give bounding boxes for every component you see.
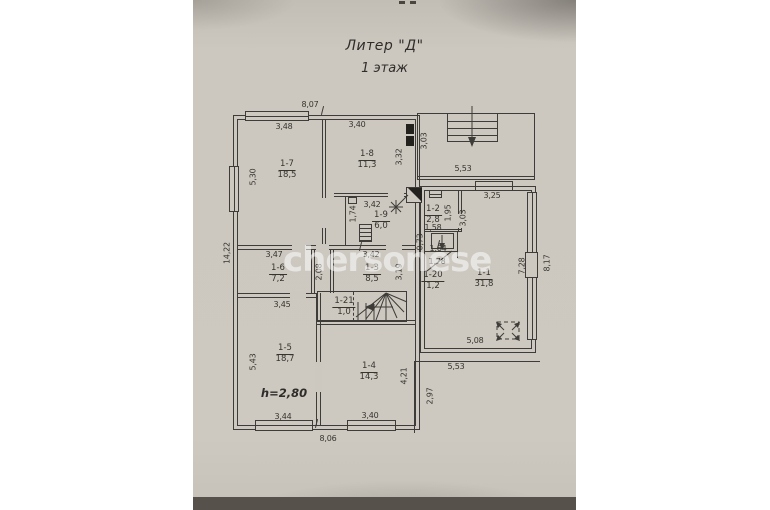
dimension-label: 3,42 (362, 250, 379, 259)
dimension-label-vertical: 3,03 (459, 209, 468, 226)
dimension-label: 3,25 (483, 191, 500, 200)
dimension-label-vertical: 3,19 (395, 263, 404, 280)
dimension-label-vertical: 3,32 (395, 148, 404, 165)
dimension-label: 3,45 (273, 300, 290, 309)
room-label-1-3: 1-38,5 (363, 264, 381, 285)
dimension-label: 3,42 (363, 200, 380, 209)
dimension-label-vertical: 4,21 (400, 367, 409, 384)
room-label-1-1: 1-131,8 (475, 269, 494, 290)
dimension-label-vertical: 8,17 (543, 254, 552, 271)
dimension-label: 5,53 (447, 362, 464, 371)
dimension-label-vertical: 1,95 (444, 204, 453, 221)
dimension-label-vertical: 5,30 (249, 168, 258, 185)
ceiling-height-note: h=2,80 (261, 386, 307, 400)
dimension-label: 1,78 (428, 257, 445, 266)
dimension-label-vertical: 7,28 (518, 257, 527, 274)
dimension-label: 3,40 (361, 411, 378, 420)
dimension-label: 1,64 (429, 244, 446, 253)
plan-labels: 1-718,51-811,31-96,01-22,81-67,21-38,51-… (0, 0, 770, 510)
scene: Литер "Д" 1 этаж (0, 0, 770, 510)
dimension-label: 1,58 (424, 223, 441, 232)
dimension-label-vertical: 2,97 (426, 387, 435, 404)
room-label-1-7: 1-718,5 (278, 160, 297, 181)
room-label-1-8: 1-811,3 (358, 150, 377, 171)
room-label-1-4: 1-414,3 (360, 362, 379, 383)
room-label-1-9: 1-96,0 (372, 211, 390, 232)
dimension-label: 8,06 (319, 434, 336, 443)
room-label-1-5: 1-518,7 (276, 344, 295, 365)
dimension-label: 3,40 (348, 120, 365, 129)
dimension-label: 3,48 (275, 122, 292, 131)
dimension-label: 5,53 (454, 164, 471, 173)
dimension-label-vertical: 5,43 (249, 353, 258, 370)
dimension-label-vertical: 0,73 (416, 233, 425, 250)
room-label-1-6: 1-67,2 (269, 264, 287, 285)
dimension-label-vertical: 14,22 (223, 242, 232, 264)
room-label-1-20: 1-201,2 (421, 271, 444, 292)
dimension-label: 3,44 (274, 412, 291, 421)
dimension-label-vertical: 2,08 (315, 263, 324, 280)
dimension-label: 8,07 (301, 100, 318, 109)
dimension-label: 3,47 (265, 250, 282, 259)
dimension-label-vertical: 1,74 (349, 205, 358, 222)
room-label-1-21: 1-211,0 (332, 297, 355, 318)
dimension-label-vertical: 3,03 (420, 132, 429, 149)
dimension-label: 5,08 (466, 336, 483, 345)
